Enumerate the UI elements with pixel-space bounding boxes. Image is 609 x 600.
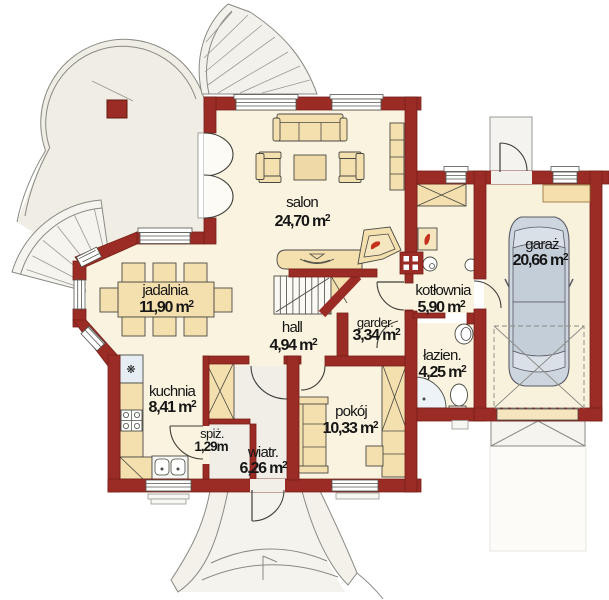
svg-text:6,26 m2: 6,26 m2 [240, 460, 289, 477]
svg-text:❋: ❋ [126, 364, 135, 376]
svg-text:garaż: garaż [525, 236, 559, 253]
svg-text:jadalnia: jadalnia [141, 282, 189, 299]
svg-text:kuchnia: kuchnia [149, 383, 197, 400]
svg-text:8,41 m2: 8,41 m2 [149, 399, 198, 416]
svg-text:kotłownia: kotłownia [415, 282, 472, 299]
svg-text:3,34 m2: 3,34 m2 [353, 327, 402, 344]
svg-text:20,66 m2: 20,66 m2 [513, 252, 569, 269]
svg-text:wiatr.: wiatr. [247, 444, 278, 461]
svg-text:1,29m: 1,29m [194, 439, 228, 454]
svg-text:24,70 m2: 24,70 m2 [275, 213, 331, 230]
svg-text:pokój: pokój [335, 403, 367, 420]
svg-text:łazien.: łazien. [423, 347, 461, 364]
svg-text:5,90 m2: 5,90 m2 [418, 299, 467, 316]
svg-text:10,33 m2: 10,33 m2 [323, 420, 379, 437]
svg-text:salon: salon [286, 194, 318, 211]
svg-text:4,25 m2: 4,25 m2 [419, 364, 468, 381]
svg-text:11,90 m2: 11,90 m2 [139, 299, 194, 316]
svg-text:hall: hall [282, 319, 303, 336]
svg-text:4,94 m2: 4,94 m2 [270, 337, 319, 354]
